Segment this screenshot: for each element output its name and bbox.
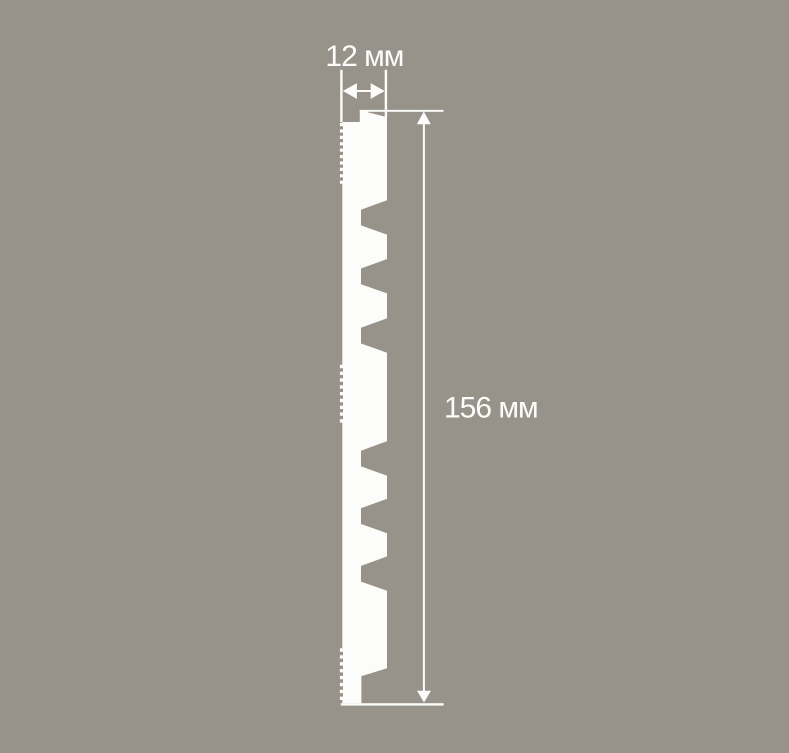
svg-text:156 мм: 156 мм bbox=[444, 392, 538, 425]
svg-text:12 мм: 12 мм bbox=[325, 40, 403, 73]
